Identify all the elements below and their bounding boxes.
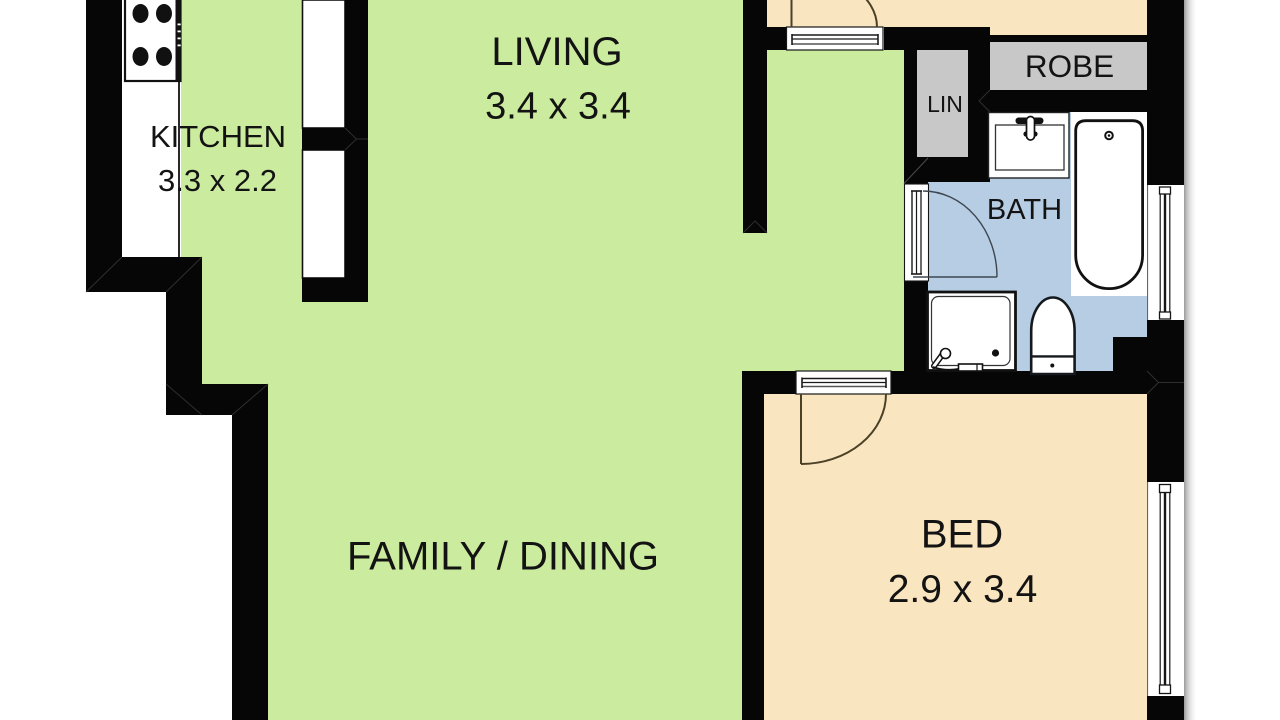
svg-text:2.9 x 3.4: 2.9 x 3.4 [888,568,1038,611]
svg-text:BATH: BATH [987,194,1062,226]
svg-text:FAMILY / DINING: FAMILY / DINING [347,535,659,579]
svg-text:LIN: LIN [927,91,963,117]
svg-text:BED: BED [921,513,1003,557]
svg-text:LIVING: LIVING [491,30,622,74]
svg-text:KITCHEN: KITCHEN [150,119,286,154]
svg-text:3.4 x 3.4: 3.4 x 3.4 [485,86,631,128]
svg-text:3.3 x 2.2: 3.3 x 2.2 [158,163,277,198]
svg-text:ROBE: ROBE [1025,48,1114,84]
